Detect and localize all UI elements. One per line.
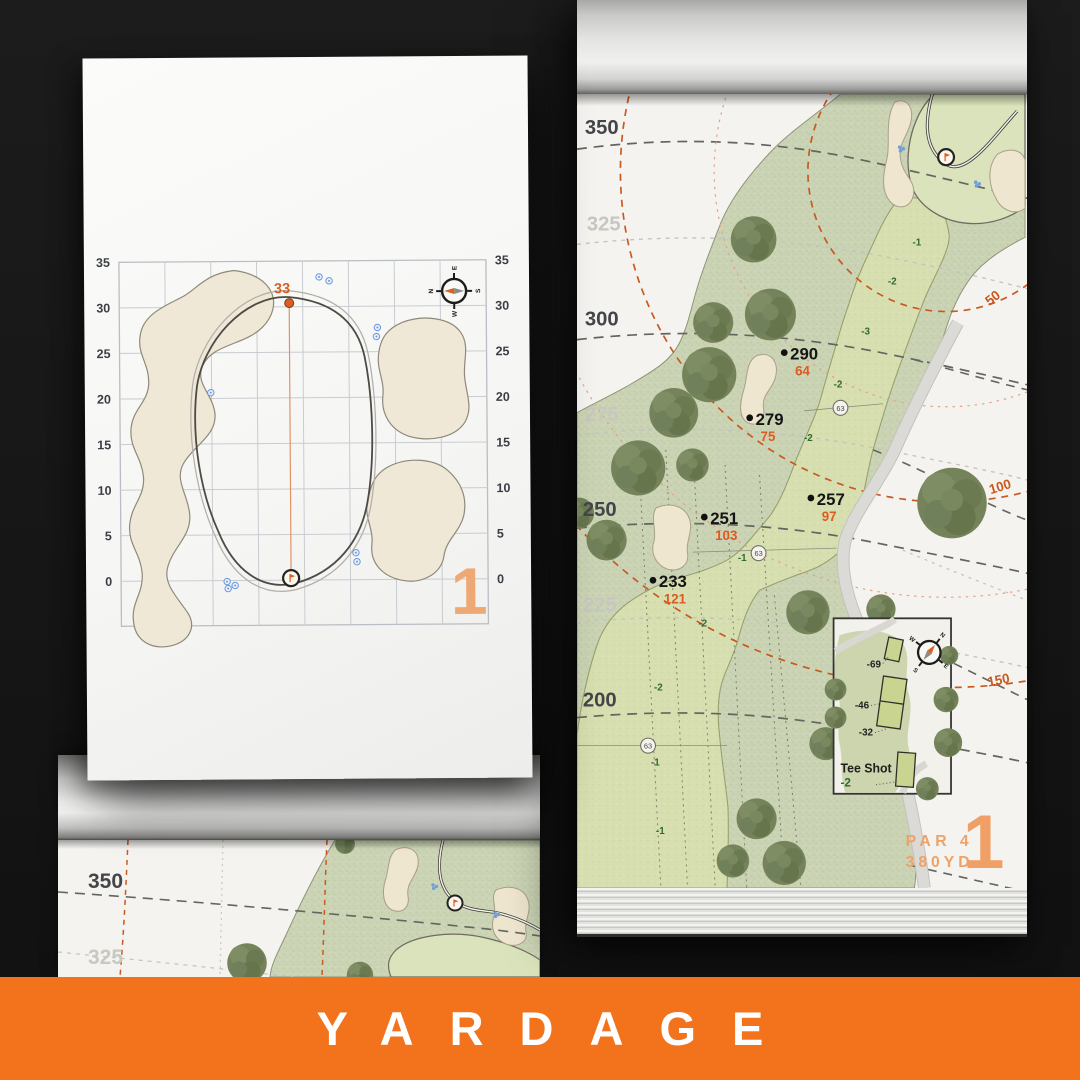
bunker <box>128 269 471 647</box>
svg-text:35: 35 <box>495 253 509 267</box>
pin-dot <box>285 299 294 308</box>
green-diagram: 3530 2520 1510 50 3530 2520 1510 50 <box>82 55 532 780</box>
axis-labels-left: 3530 2520 1510 50 <box>96 256 112 589</box>
hole-map-page: 50 100 150 <box>577 94 1027 888</box>
tree-icon <box>227 943 267 977</box>
svg-text:-69: -69 <box>867 659 882 670</box>
svg-text:225: 225 <box>583 594 617 616</box>
svg-text:10: 10 <box>496 481 510 495</box>
tee-shot-inset: -69 -46 -32 <box>825 617 963 800</box>
stacked-page-edges <box>577 888 1027 937</box>
svg-text:100: 100 <box>987 476 1013 497</box>
pin-distance-label: 33 <box>274 281 290 297</box>
svg-text:E: E <box>451 265 458 270</box>
carry-value: 233 <box>659 572 687 591</box>
svg-text:200: 200 <box>583 689 617 711</box>
under-map-art: 350 325 <box>58 840 540 977</box>
mockup-scene: 350 325 3530 2520 <box>0 0 1080 1080</box>
svg-text:-1: -1 <box>913 237 922 248</box>
banner-title: YARDAGE <box>0 977 1080 1080</box>
svg-text:20: 20 <box>97 393 111 407</box>
hole-number: 1 <box>963 800 1005 885</box>
svg-text:-3: -3 <box>861 327 870 338</box>
svg-text:-1: -1 <box>651 758 660 769</box>
svg-text:25: 25 <box>495 344 509 358</box>
under-map-page: 350 325 <box>58 840 540 977</box>
svg-text:250: 250 <box>583 499 617 521</box>
svg-text:25: 25 <box>97 347 111 361</box>
svg-text:35: 35 <box>96 256 110 270</box>
svg-text:275: 275 <box>585 404 619 426</box>
svg-text:5: 5 <box>105 529 112 543</box>
svg-text:63: 63 <box>836 404 844 413</box>
axis-labels-right: 3530 2520 1510 50 <box>495 253 511 586</box>
yardage-banner: YARDAGE <box>0 977 1080 1080</box>
under-book: 350 325 <box>58 755 540 977</box>
svg-text:325: 325 <box>587 213 621 235</box>
remaining-value: 75 <box>761 429 776 444</box>
inset-title: Tee Shot <box>840 762 891 776</box>
carry-value: 279 <box>756 410 784 429</box>
svg-text:10: 10 <box>98 484 112 498</box>
carry-value: 257 <box>817 490 845 509</box>
distance-label: 350 <box>88 870 123 893</box>
hole-map-art: 50 100 150 <box>577 94 1027 888</box>
svg-text:63: 63 <box>754 549 762 558</box>
svg-text:-1: -1 <box>738 553 747 564</box>
pin-flag-icon <box>448 896 463 911</box>
svg-text:-1: -1 <box>656 826 665 837</box>
green-detail-page: 3530 2520 1510 50 3530 2520 1510 50 <box>82 55 532 780</box>
svg-text:63: 63 <box>644 742 652 751</box>
compass-rose-icon: N E S W <box>428 265 482 317</box>
svg-text:0: 0 <box>497 572 504 586</box>
svg-text:-2: -2 <box>698 618 707 629</box>
remaining-value: 103 <box>715 528 737 543</box>
svg-text:30: 30 <box>495 299 509 313</box>
svg-text:-32: -32 <box>859 728 874 739</box>
carry-value: 290 <box>790 345 818 364</box>
svg-text:-46: -46 <box>855 700 870 711</box>
remaining-value: 97 <box>822 509 837 524</box>
carry-value: 251 <box>710 509 738 528</box>
svg-text:W: W <box>452 310 459 317</box>
remaining-value: 64 <box>795 364 810 379</box>
svg-text:20: 20 <box>496 390 510 404</box>
svg-text:0: 0 <box>105 575 112 589</box>
distance-label: 325 <box>88 946 123 969</box>
svg-text:350: 350 <box>585 117 619 139</box>
svg-text:300: 300 <box>585 308 619 330</box>
svg-text:5: 5 <box>497 527 504 541</box>
hole-map-book: 50 100 150 <box>577 0 1027 934</box>
svg-text:150: 150 <box>986 670 1011 689</box>
svg-text:50: 50 <box>982 287 1003 308</box>
pin-flag-icon <box>938 149 954 165</box>
arc-labels: 50 100 150 <box>982 287 1013 689</box>
hole-number: 1 <box>451 554 488 628</box>
svg-text:15: 15 <box>97 438 111 452</box>
remaining-value: 121 <box>664 591 687 606</box>
pin-line <box>289 303 291 574</box>
svg-text:S: S <box>475 288 482 293</box>
svg-text:-2: -2 <box>804 433 813 444</box>
inset-slope: -2 <box>840 776 851 790</box>
pin-flag-icon <box>283 570 299 586</box>
svg-text:-2: -2 <box>888 276 897 287</box>
svg-text:-2: -2 <box>654 682 663 693</box>
svg-text:15: 15 <box>496 435 510 449</box>
svg-text:30: 30 <box>96 301 110 315</box>
svg-text:N: N <box>428 288 435 293</box>
page-curl <box>577 0 1027 94</box>
svg-text:-2: -2 <box>834 380 843 391</box>
